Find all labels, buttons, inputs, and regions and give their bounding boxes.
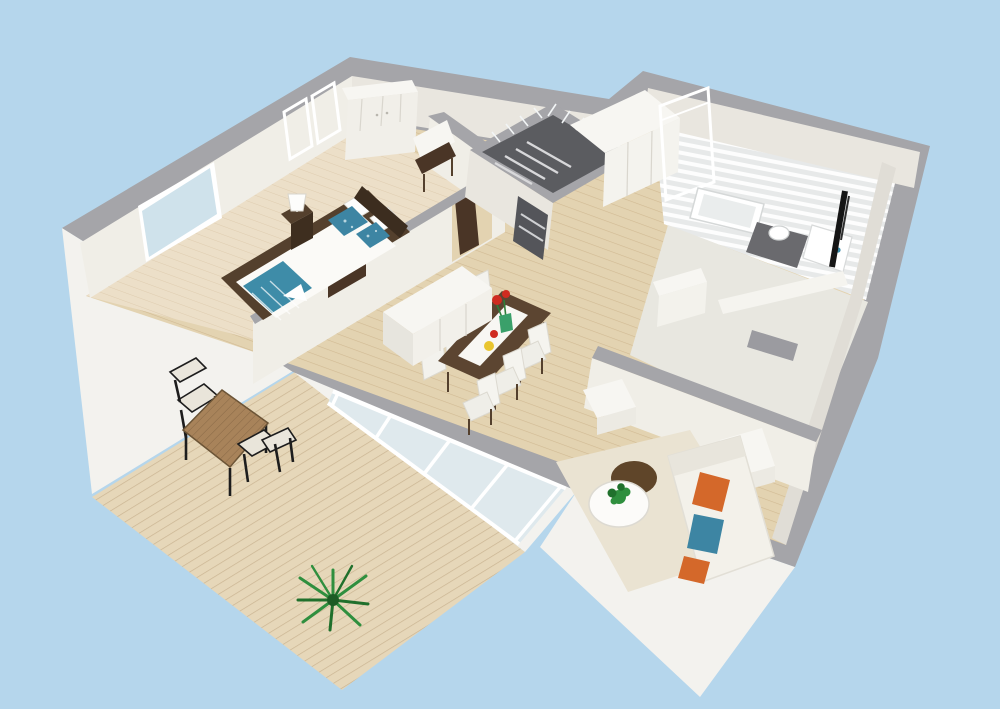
red-flowers	[502, 290, 510, 298]
red-bowl	[490, 330, 498, 338]
table-lamp	[288, 194, 306, 211]
plant-vase	[499, 313, 513, 333]
yellow-plate	[484, 341, 494, 351]
wardrobe	[342, 80, 418, 160]
floorplan-canvas[interactable]	[0, 0, 1000, 709]
toilet	[769, 226, 789, 240]
floorplan-viewport	[0, 0, 1000, 709]
red-flowers	[492, 295, 502, 305]
plant-core	[327, 594, 339, 606]
